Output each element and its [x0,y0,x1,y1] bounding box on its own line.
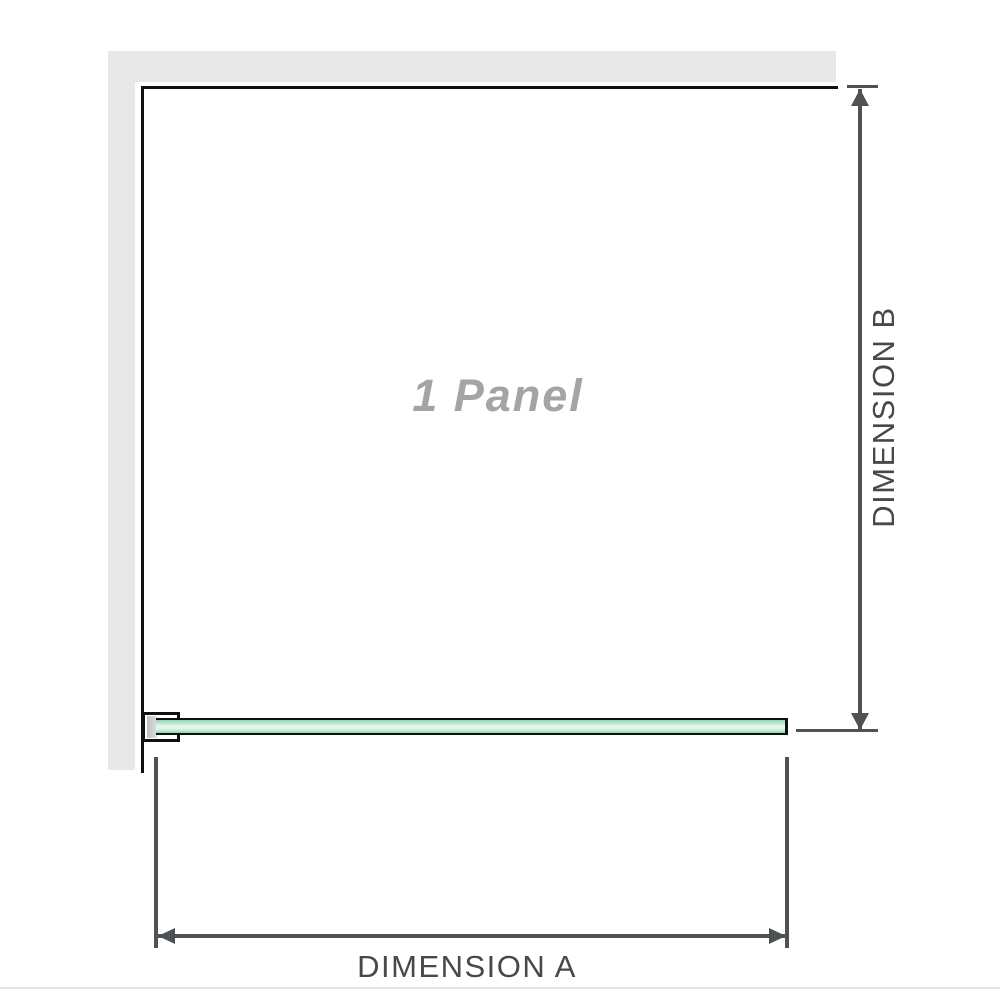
dimension-a-extension-right [785,757,789,948]
dimension-b-line [858,89,862,731]
arrow-left-icon [158,928,175,944]
dimension-a-line [158,934,786,938]
wall-top [108,51,836,82]
page-baseline [0,987,1000,989]
arrow-up-icon [851,89,869,106]
dimension-a-extension-left [154,757,158,948]
arrow-down-icon [851,713,869,730]
wall-inner-edge-top [144,86,838,89]
dimension-b-label: DIMENSION B [866,306,902,527]
dimension-diagram: 1 Panel DIMENSION B DIMENSION A [0,0,1000,1000]
glass-panel [156,718,788,735]
dimension-b-top-tick [847,85,878,88]
arrow-right-icon [769,928,786,944]
panel-count-label: 1 Panel [412,370,584,422]
dimension-a-label: DIMENSION A [357,949,577,985]
wall-left [108,51,135,770]
wall-inner-edge-left [141,86,144,773]
